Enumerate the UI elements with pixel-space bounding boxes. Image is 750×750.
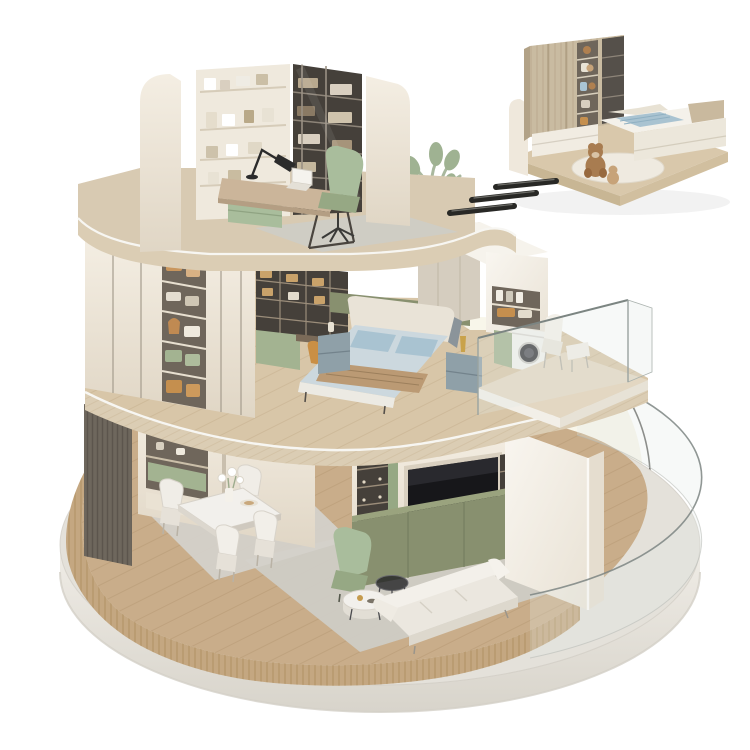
gold-lamp [460, 336, 466, 352]
wardrobe-side [524, 46, 530, 141]
teddy-muzzle [592, 152, 600, 158]
isometric-home-render [0, 0, 750, 750]
dark-slat-grooves [84, 404, 132, 566]
flower-vase [225, 488, 233, 502]
green-base-cabinet [256, 330, 300, 370]
study-left-rounded-wall [140, 74, 181, 252]
wicker-basket [166, 380, 182, 393]
handbag [168, 318, 180, 334]
storage-box [184, 326, 200, 337]
kids-bedroom-block [509, 35, 730, 215]
nightstand-decor [328, 322, 334, 332]
green-drawer [165, 350, 182, 362]
study-right-rounded-wall [366, 76, 410, 226]
laundry-basket [497, 308, 515, 317]
table-decor-gold [357, 595, 363, 601]
railing-return-panel [628, 300, 652, 382]
